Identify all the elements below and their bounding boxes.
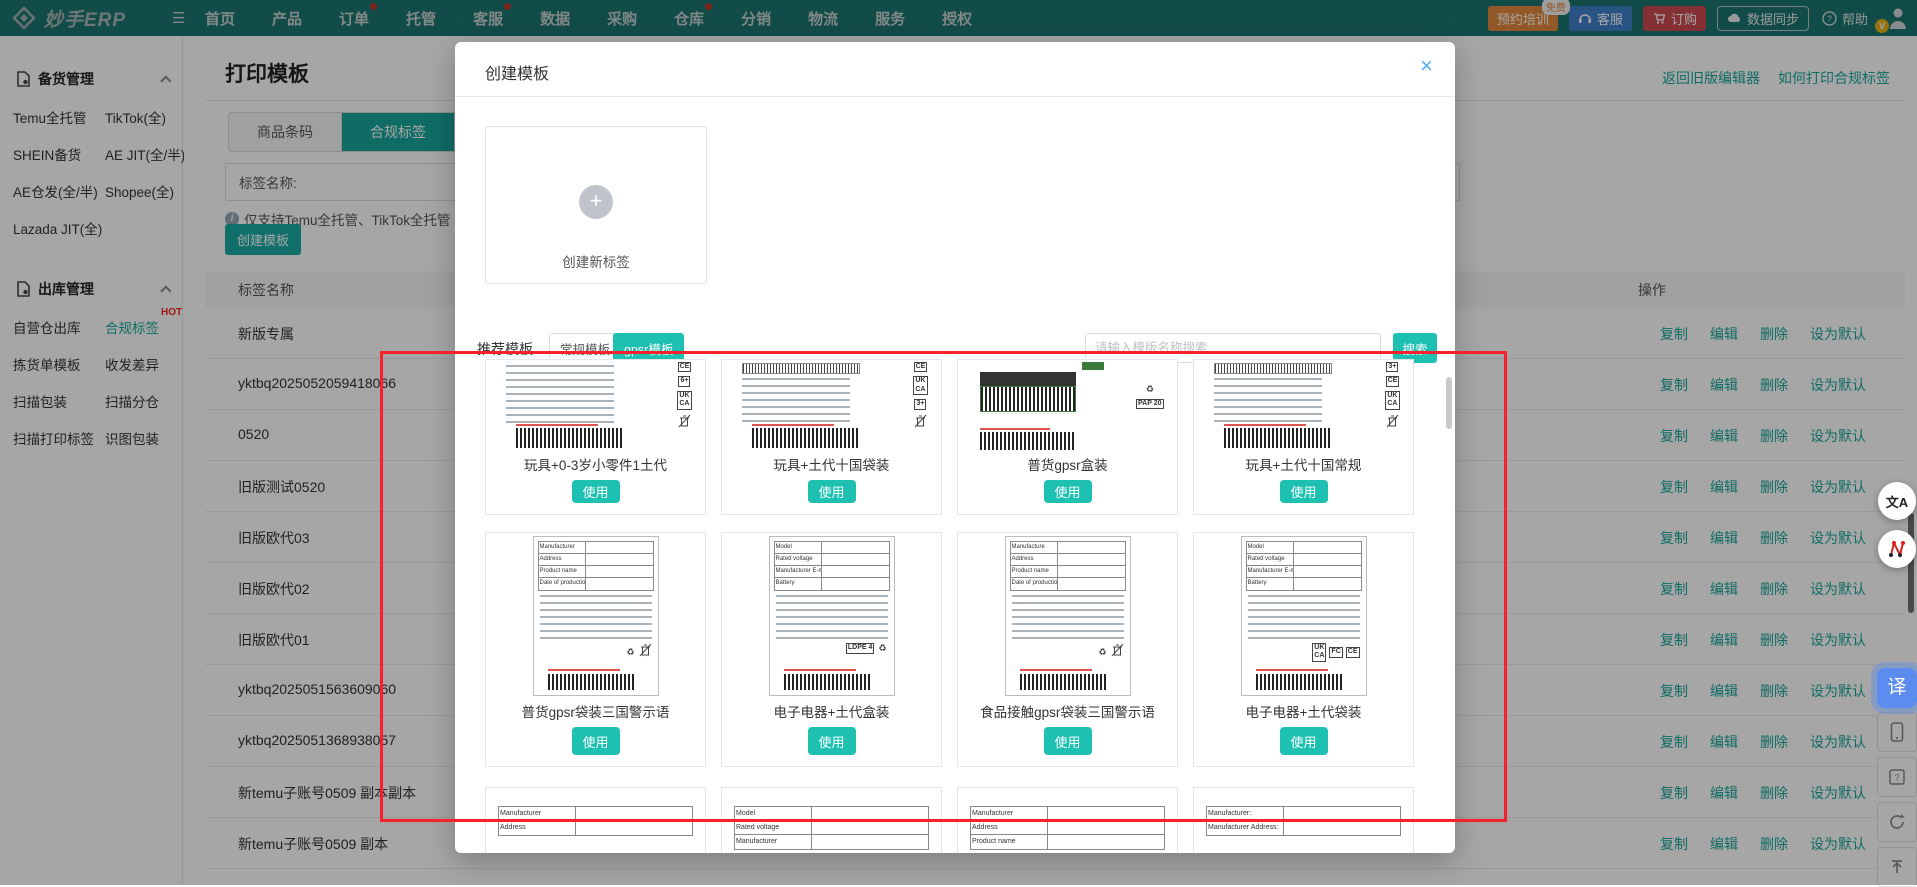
template-card: 3+CEUK CA玩具+土代十国常规使用 — [1193, 359, 1414, 515]
label-table-row: Date of production — [1011, 578, 1125, 590]
label-mark: CE — [914, 362, 928, 372]
label-table-row: Manufacturer — [539, 542, 653, 554]
template-card: ♻PAP 20普货gpsr盒装使用 — [957, 359, 1178, 515]
label-marks: LDPE 4♻ — [846, 643, 888, 654]
thumb-part — [742, 378, 850, 422]
label-mark: UK CA — [677, 391, 691, 410]
label-table-row: Manufacturer — [971, 807, 1164, 821]
label-marks: 3+CEUK CA — [1385, 362, 1399, 433]
label-table-cell — [1058, 542, 1124, 553]
thumb-part — [1020, 674, 1106, 690]
label-table-cell: Model — [1247, 542, 1295, 553]
create-new-label-card[interactable]: + 创建新标签 — [485, 126, 707, 284]
use-template-button[interactable]: 使用 — [1044, 480, 1092, 503]
thumb-part — [980, 428, 1050, 430]
modal-title: 创建模板 — [485, 60, 549, 84]
thumb-part — [1256, 669, 1328, 671]
crossed-bin-icon — [639, 643, 652, 662]
label-table-cell: Manufacture — [1011, 542, 1059, 553]
label-table-cell — [1058, 554, 1124, 565]
label-table-cell: Date of production — [1011, 578, 1059, 590]
crossed-bin-icon — [678, 414, 691, 428]
template-card-partial: ManufacturerAddressProduct name — [957, 787, 1178, 853]
label-table-cell: Manufacturer — [971, 807, 1048, 820]
label-table-row: Manufacturer: — [1207, 807, 1400, 821]
use-template-button[interactable]: 使用 — [1280, 480, 1328, 503]
use-template-button[interactable]: 使用 — [572, 480, 620, 503]
label-table-cell: Manufacturer — [499, 807, 576, 820]
label-table: ManufacturerAddressProduct nameDate of p… — [538, 541, 654, 591]
crossed-bin-icon — [1111, 643, 1124, 662]
create-template-modal: 创建模板 × + 创建新标签 推荐模板 常规模板gpsr模板 搜索 CE6+UK… — [455, 42, 1455, 853]
modal-scrollbar[interactable] — [1446, 377, 1452, 429]
label-table-cell: Address — [971, 821, 1048, 834]
thumb-part — [752, 428, 860, 448]
template-title: 玩具+0-3岁小零件1土代 — [524, 454, 667, 474]
thumbnail-area: ModelRated voltageManufacturer E-mailBat… — [1194, 533, 1413, 699]
label-table-cell: Manufacturer: — [1207, 807, 1284, 820]
label-table-cell — [1048, 821, 1164, 834]
thumbnail-area: ♻PAP 20 — [958, 360, 1177, 452]
label-table: Manufacturer:Manufacturer Address: — [1206, 806, 1401, 836]
template-card-partial: Manufacturer:Manufacturer Address: — [1193, 787, 1414, 853]
template-card: CE6+UK CA玩具+0-3岁小零件1土代使用 — [485, 359, 706, 515]
label-table-cell — [822, 542, 888, 553]
crossed-bin-icon — [1386, 414, 1399, 433]
thumb-part — [742, 363, 860, 374]
label-table-row: Rated voltage — [735, 821, 928, 835]
label-table-cell: Manufacturer E-mail — [1247, 566, 1295, 577]
label-table-cell — [1048, 807, 1164, 820]
label-mark: 3+ — [1386, 362, 1398, 372]
label-mark: 6+ — [678, 376, 690, 386]
label-table-cell — [576, 807, 692, 820]
thumb-part — [784, 669, 856, 671]
template-thumbnail: CEUK CA3+ — [734, 360, 930, 452]
template-card-partial: ModelRated voltageManufacturer — [721, 787, 942, 853]
label-mark: LDPE 4 — [846, 643, 875, 653]
label-table-cell — [1284, 821, 1400, 835]
label-table-row: Address — [539, 554, 653, 566]
crossed-bin-icon — [678, 414, 691, 433]
thumbnail-area: ManufacturerAddressProduct nameDate of p… — [486, 533, 705, 699]
thumb-part — [752, 424, 834, 426]
thumb-part — [548, 674, 634, 690]
label-table-row: Manufacturer E-mail — [1247, 566, 1361, 578]
close-icon[interactable]: × — [1420, 53, 1433, 79]
label-table: ModelRated voltageManufacturer — [734, 806, 929, 850]
label-table-row: Product name — [539, 566, 653, 578]
label-table-row: Model — [1247, 542, 1361, 554]
label-table-row: Product name — [971, 835, 1164, 849]
label-mark: 3+ — [914, 399, 926, 409]
template-title: 电子电器+土代袋装 — [1246, 701, 1362, 721]
label-marks: CEUK CA3+ — [913, 362, 927, 433]
label-table-cell: Address — [1011, 554, 1059, 565]
use-template-button[interactable]: 使用 — [572, 727, 620, 755]
label-table-cell: Product name — [539, 566, 587, 577]
label-table: ManufacturerAddress — [498, 806, 693, 836]
label-table-row: Manufacturer — [735, 835, 928, 849]
network-tool-button[interactable] — [1878, 530, 1916, 568]
label-mark: UK CA — [1385, 391, 1399, 410]
new-label-text: 创建新标签 — [486, 251, 706, 271]
use-template-button[interactable]: 使用 — [808, 727, 856, 755]
label-table-row: Battery — [775, 578, 889, 590]
label-marks: ♻ — [1097, 643, 1123, 662]
template-card: ManufacturerAddressProduct nameDate of p… — [485, 532, 706, 767]
label-marks: CE6+UK CA — [677, 362, 691, 433]
label-table-cell: Address — [539, 554, 587, 565]
crossed-bin-icon — [639, 643, 652, 657]
label-table-cell — [586, 554, 652, 565]
template-thumbnail: ModelRated voltageManufacturer E-mailBat… — [769, 536, 895, 696]
thumb-part — [980, 432, 1076, 450]
template-title: 玩具+土代十国常规 — [1246, 454, 1362, 474]
label-table-cell — [586, 542, 652, 553]
label-mark: ♻ — [877, 643, 887, 654]
label-table-cell — [1058, 566, 1124, 577]
thumb-part — [540, 595, 652, 641]
label-table-cell — [1058, 578, 1124, 590]
label-table-cell: Address — [499, 821, 576, 835]
thumb-part — [548, 669, 620, 671]
label-table-cell — [586, 578, 652, 590]
template-title: 食品接触gpsr袋装三国警示语 — [980, 701, 1155, 721]
template-title: 玩具+土代十国袋装 — [774, 454, 890, 474]
label-table-cell: Battery — [775, 578, 823, 590]
page-translate-button[interactable]: 译 — [1877, 668, 1917, 708]
label-table-row: Product name — [1011, 566, 1125, 578]
label-table-cell — [1294, 578, 1360, 590]
template-thumbnail: ManufactureAddressProduct nameDate of pr… — [1005, 536, 1131, 696]
template-title: 电子电器+土代盒装 — [774, 701, 890, 721]
template-card: ManufactureAddressProduct nameDate of pr… — [957, 532, 1178, 767]
translate-circle-button[interactable]: 文A — [1878, 482, 1916, 520]
label-marks: UK CAFCCE — [1312, 643, 1359, 662]
label-table-cell: Rated voltage — [775, 554, 823, 565]
label-table-row: Address — [499, 821, 692, 835]
thumb-part — [1248, 595, 1360, 641]
label-table-cell — [1048, 835, 1164, 849]
thumbnail-area: ModelRated voltageManufacturer E-mailBat… — [722, 533, 941, 699]
label-table-cell: Product name — [1011, 566, 1059, 577]
label-table-cell: Date of production — [539, 578, 587, 590]
translate-icon: 文A — [1886, 492, 1908, 511]
use-template-button[interactable]: 使用 — [808, 480, 856, 503]
template-card: CEUK CA3+玩具+土代十国袋装使用 — [721, 359, 942, 515]
template-thumbnail: ♻PAP 20 — [970, 360, 1166, 452]
label-table: ModelRated voltageManufacturer E-mailBat… — [1246, 541, 1362, 591]
label-table-cell: Manufacturer — [735, 835, 812, 849]
template-thumbnail: ManufacturerAddressProduct nameDate of p… — [533, 536, 659, 696]
thumbnail-area: CE6+UK CA — [486, 360, 705, 452]
use-template-button[interactable]: 使用 — [1044, 727, 1092, 755]
thumbnail-area: 3+CEUK CA — [1194, 360, 1413, 452]
label-mark: ♻ — [1145, 384, 1155, 395]
label-table-cell: Product name — [971, 835, 1048, 849]
label-table: ModelRated voltageManufacturer E-mailBat… — [774, 541, 890, 591]
template-grid-row-1: CE6+UK CA玩具+0-3岁小零件1土代使用CEUK CA3+玩具+土代十国… — [485, 359, 1425, 515]
template-title: 普货gpsr袋装三国警示语 — [522, 701, 670, 721]
template-card: ModelRated voltageManufacturer E-mailBat… — [721, 532, 942, 767]
label-table-cell — [812, 807, 928, 820]
thumb-part — [516, 424, 598, 426]
thumbnail-area: ManufactureAddressProduct nameDate of pr… — [958, 533, 1177, 699]
label-table-row: Battery — [1247, 578, 1361, 590]
thumb-part — [980, 372, 1076, 386]
label-table-cell: Manufacturer — [539, 542, 587, 553]
label-table-row: Address — [971, 821, 1164, 835]
label-table-cell — [1294, 566, 1360, 577]
crossed-bin-icon — [1111, 643, 1124, 657]
thumb-part — [1214, 363, 1332, 374]
label-table-cell: Rated voltage — [1247, 554, 1295, 565]
label-table-cell — [812, 821, 928, 834]
template-title: 普货gpsr盒装 — [1027, 454, 1107, 474]
label-mark: PAP 20 — [1136, 399, 1163, 409]
label-table-cell — [822, 554, 888, 565]
thumb-part — [784, 674, 870, 690]
label-table-cell: Model — [735, 807, 812, 820]
thumbnail-area: CEUK CA3+ — [722, 360, 941, 452]
label-table-row: Date of production — [539, 578, 653, 590]
template-card: ModelRated voltageManufacturer E-mailBat… — [1193, 532, 1414, 767]
label-table-cell: Model — [775, 542, 823, 553]
template-grid-row-3: ManufacturerAddressModelRated voltageMan… — [485, 787, 1425, 853]
label-mark: UK CA — [1312, 643, 1326, 662]
network-graph-icon — [1887, 539, 1907, 559]
thumb-part — [506, 365, 614, 423]
label-table-cell — [1284, 807, 1400, 820]
crossed-bin-icon — [914, 414, 927, 433]
label-mark: UK CA — [913, 376, 927, 395]
label-table-row: Rated voltage — [1247, 554, 1361, 566]
recommended-label: 推荐模板 — [477, 339, 533, 359]
thumb-part — [516, 428, 624, 448]
thumb-part — [1214, 378, 1322, 422]
label-mark: FC — [1329, 647, 1342, 657]
label-table-cell — [576, 821, 692, 835]
label-table-cell — [1294, 554, 1360, 565]
template-thumbnail: 3+CEUK CA — [1206, 360, 1402, 452]
label-mark: ♻ — [625, 647, 635, 658]
label-table: ManufacturerAddressProduct name — [970, 806, 1165, 850]
template-grid-row-2: ManufacturerAddressProduct nameDate of p… — [485, 532, 1425, 767]
thumb-part — [1082, 362, 1104, 370]
template-thumbnail: ModelRated voltageManufacturer E-mailBat… — [1241, 536, 1367, 696]
label-marks: ♻ — [625, 643, 651, 662]
label-table-cell — [812, 835, 928, 849]
label-table: ManufactureAddressProduct nameDate of pr… — [1010, 541, 1126, 591]
label-table-row: Rated voltage — [775, 554, 889, 566]
label-table-row: Model — [735, 807, 928, 821]
label-table-cell: Rated voltage — [735, 821, 812, 834]
template-card-partial: ManufacturerAddress — [485, 787, 706, 853]
label-marks: ♻PAP 20 — [1136, 384, 1163, 409]
label-mark: CE — [678, 362, 692, 372]
label-table-cell: Manufacturer Address: — [1207, 821, 1284, 835]
label-table-row: Manufacturer E-mail — [775, 566, 889, 578]
label-table-row: Manufacturer — [499, 807, 692, 821]
label-table-row: Manufacturer Address: — [1207, 821, 1400, 835]
crossed-bin-icon — [914, 414, 927, 428]
label-table-cell: Battery — [1247, 578, 1295, 590]
label-table-cell — [822, 566, 888, 577]
thumb-part — [1224, 428, 1332, 448]
thumb-part — [776, 595, 888, 641]
label-table-cell — [1294, 542, 1360, 553]
use-template-button[interactable]: 使用 — [1280, 727, 1328, 755]
label-mark: ♻ — [1097, 647, 1107, 658]
label-table-row: Manufacture — [1011, 542, 1125, 554]
plus-icon: + — [579, 185, 613, 219]
label-mark: CE — [1386, 376, 1400, 386]
thumb-part — [1224, 424, 1306, 426]
label-table-row: Address — [1011, 554, 1125, 566]
label-table-cell — [586, 566, 652, 577]
thumb-part — [1012, 595, 1124, 641]
label-table-cell — [822, 578, 888, 590]
thumb-part — [1256, 674, 1342, 690]
thumb-part — [980, 386, 1076, 412]
label-table-row: Model — [775, 542, 889, 554]
label-mark: CE — [1346, 647, 1360, 657]
template-thumbnail: CE6+UK CA — [498, 360, 694, 452]
crossed-bin-icon — [1386, 414, 1399, 428]
label-table-cell: Manufacturer E-mail — [775, 566, 823, 577]
thumb-part — [1020, 669, 1092, 671]
modal-header: 创建模板 × — [455, 42, 1455, 97]
